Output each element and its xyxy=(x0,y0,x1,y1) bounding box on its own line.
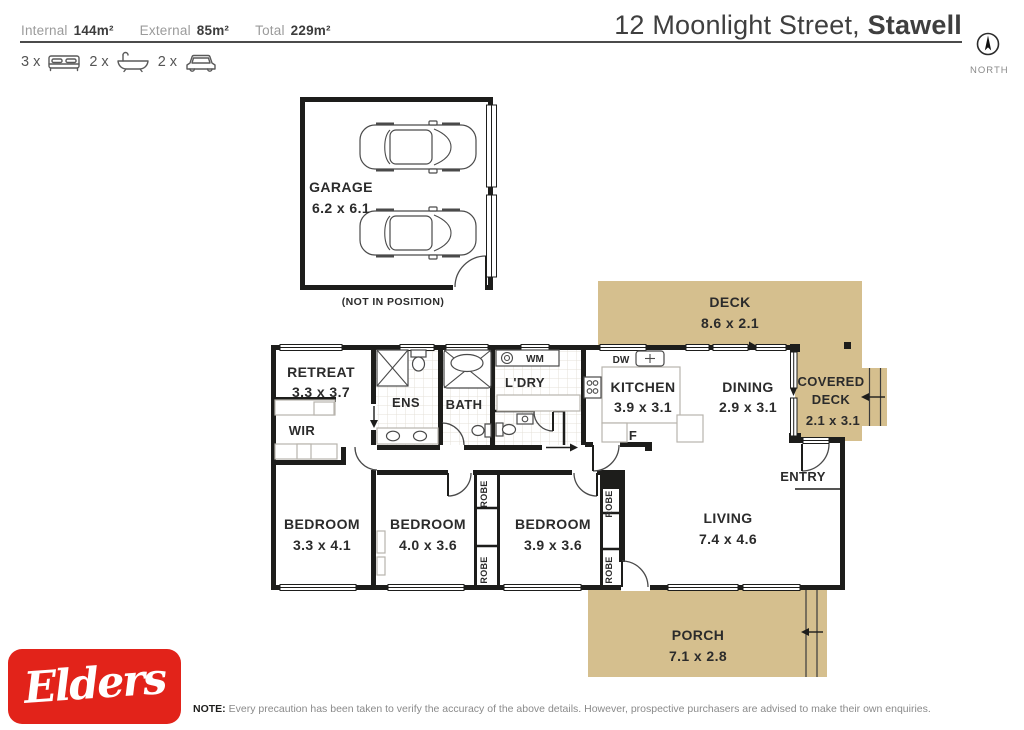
fridge-label: F xyxy=(629,428,637,443)
wir-label: WIR xyxy=(289,423,316,438)
disclaimer-note: NOTE:Every precaution has been taken to … xyxy=(193,703,931,715)
bath-toilet xyxy=(485,424,491,437)
floor-plan: GARAGE 6.2 x 6.1 (NOT IN POSITION) xyxy=(0,0,1024,730)
bedroom2-label: BEDROOM xyxy=(390,516,466,532)
garage-label: GARAGE xyxy=(309,179,373,195)
covered-deck-label-2: DECK xyxy=(812,392,851,407)
bedroom1-label: BEDROOM xyxy=(284,516,360,532)
living-dims: 7.4 x 4.6 xyxy=(699,531,757,547)
living-label: LIVING xyxy=(703,510,752,526)
dining-label: DINING xyxy=(722,379,773,395)
bedroom3-dims: 3.9 x 3.6 xyxy=(524,537,582,553)
deck-dims: 8.6 x 2.1 xyxy=(701,315,759,331)
wc-basin xyxy=(517,414,533,424)
deck-label: DECK xyxy=(709,294,750,310)
robe-label-4: ROBE xyxy=(604,556,614,583)
ens-toilet xyxy=(411,350,426,357)
robe-label-2: ROBE xyxy=(479,556,489,583)
entry-label: ENTRY xyxy=(780,469,826,484)
porch-dims: 7.1 x 2.8 xyxy=(669,648,727,664)
ens-basin-2 xyxy=(414,431,427,441)
kitchen-label: KITCHEN xyxy=(610,379,675,395)
covered-deck-label-1: COVERED xyxy=(797,374,864,389)
retreat-label: RETREAT xyxy=(287,364,355,380)
elders-logo-text: Elders xyxy=(22,654,167,720)
ens-label: ENS xyxy=(392,395,420,410)
garage: GARAGE 6.2 x 6.1 (NOT IN POSITION) xyxy=(303,100,497,309)
stove xyxy=(584,377,601,398)
kitchen-dims: 3.9 x 3.1 xyxy=(614,399,672,415)
elders-logo: Elders xyxy=(8,649,181,724)
garage-dims: 6.2 x 6.1 xyxy=(312,200,370,216)
retreat-dims: 3.3 x 3.7 xyxy=(292,384,350,400)
laundry-label: L'DRY xyxy=(505,375,545,390)
dw-label: DW xyxy=(613,355,630,366)
porch-label: PORCH xyxy=(672,627,725,643)
robe-label-1: ROBE xyxy=(479,480,489,507)
bedroom1-dims: 3.3 x 4.1 xyxy=(293,537,351,553)
robe-label-3: ROBE xyxy=(604,490,614,517)
ens-basin xyxy=(387,431,400,441)
bedroom3-label: BEDROOM xyxy=(515,516,591,532)
covered-deck-dims: 2.1 x 3.1 xyxy=(806,413,860,428)
disclaimer-note-label: NOTE: xyxy=(193,703,226,715)
wm-label: WM xyxy=(526,354,544,365)
dining-dims: 2.9 x 3.1 xyxy=(719,399,777,415)
bath-label: BATH xyxy=(446,397,483,412)
garage-note: (NOT IN POSITION) xyxy=(342,296,444,308)
bedroom2-dims: 4.0 x 3.6 xyxy=(399,537,457,553)
